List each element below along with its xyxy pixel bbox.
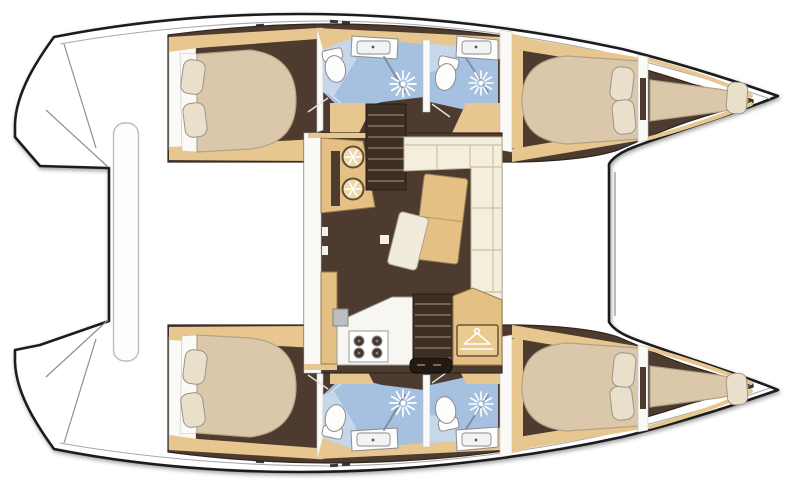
galley-sink-basin	[333, 309, 348, 326]
saloon	[304, 104, 502, 373]
pillow	[180, 59, 207, 96]
wardrobe	[453, 288, 502, 365]
double-bed	[197, 50, 296, 152]
galley-sink-icon	[343, 147, 364, 168]
stove-icon	[349, 331, 388, 362]
deck-plan	[0, 0, 796, 487]
pillow	[609, 66, 635, 102]
saloon-left-wall	[304, 133, 321, 373]
entry-step	[410, 358, 452, 373]
pillow	[182, 102, 208, 138]
pillow	[611, 99, 636, 135]
port-companionway-stairs	[366, 104, 406, 190]
pillow	[726, 82, 748, 115]
deck-plan-svg	[0, 0, 796, 487]
galley-sink-icon	[343, 179, 364, 200]
starboard-companionway-stairs	[410, 294, 453, 373]
aft-beam	[114, 123, 139, 361]
